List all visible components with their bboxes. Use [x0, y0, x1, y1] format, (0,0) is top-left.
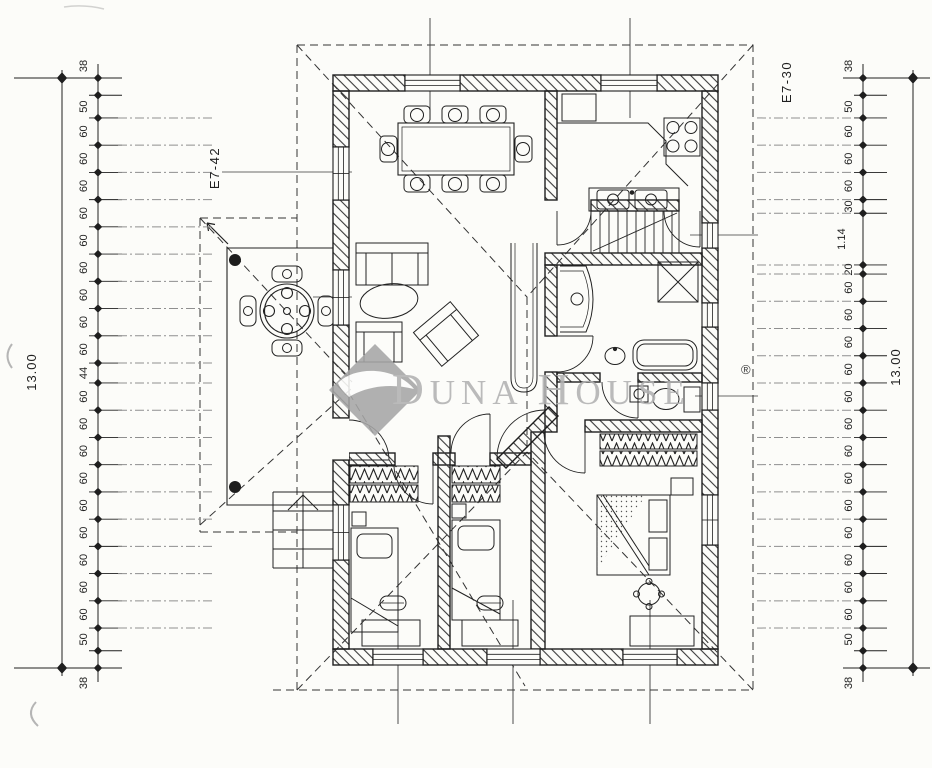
dimension-value: 60 [843, 125, 855, 137]
dimension-value: 60 [78, 343, 90, 355]
dimension-value: 60 [843, 282, 855, 294]
wall-segment [702, 91, 718, 223]
wall-segment [585, 420, 702, 432]
dimension-value: 30 [843, 200, 855, 212]
dimension-value: 60 [78, 125, 90, 137]
window [405, 75, 460, 91]
dimension-value: 60 [78, 207, 90, 219]
watermark-text: DUNAHOUSE [392, 365, 691, 414]
total-dimension-right-label: 13.00 [888, 348, 903, 386]
dimension-value: 50 [843, 633, 855, 645]
dimension-value: 60 [843, 363, 855, 375]
blueprint-canvas: 3850606060606060606060446060606060606060… [0, 0, 932, 768]
wall-segment [540, 649, 623, 665]
window [487, 649, 540, 665]
wall-segment [460, 75, 601, 91]
dimension-value: 60 [843, 581, 855, 593]
dimension-value: 60 [78, 418, 90, 430]
window [333, 147, 349, 200]
dimension-value: 60 [78, 472, 90, 484]
dimension-value: 50 [78, 100, 90, 112]
dimension-value: 60 [843, 336, 855, 348]
wall-segment [333, 200, 349, 270]
axis-code-right: E7-30 [779, 61, 794, 103]
total-dimension-left-label: 13.00 [24, 353, 39, 391]
wall-segment [333, 649, 373, 665]
dimension-value: 38 [843, 677, 855, 689]
dimension-value: 60 [843, 418, 855, 430]
wall-segment [702, 545, 718, 649]
window [702, 223, 718, 248]
wall-segment [545, 265, 557, 336]
dimension-value: 60 [78, 289, 90, 301]
wall-segment [333, 75, 405, 91]
wall-segment [545, 91, 557, 200]
dimension-value: 60 [843, 472, 855, 484]
wall-segment [702, 248, 718, 303]
terrace-post [229, 254, 241, 266]
wall-segment [702, 410, 718, 495]
wardrobe [452, 466, 500, 483]
dimension-value: 60 [78, 262, 90, 274]
window [333, 270, 349, 325]
dimension-value: 60 [78, 527, 90, 539]
dimension-value: 60 [843, 499, 855, 511]
dimension-value: 44 [78, 367, 90, 379]
terrace-post [229, 481, 241, 493]
wall-segment [333, 560, 349, 649]
window [333, 505, 349, 560]
window [702, 303, 718, 327]
dimension-value: 60 [78, 445, 90, 457]
wall-segment [349, 453, 395, 465]
axis-code-left: E7-42 [207, 147, 222, 189]
wall-segment [531, 432, 545, 649]
dimension-value: 60 [78, 316, 90, 328]
wall-segment [677, 649, 718, 665]
dimension-value: 60 [843, 180, 855, 192]
wall-segment [423, 649, 487, 665]
dimension-value: 60 [78, 499, 90, 511]
dimension-value: 1.14 [836, 228, 848, 249]
window [623, 649, 677, 665]
wall-segment [545, 253, 702, 265]
dimension-value: 60 [78, 608, 90, 620]
dimension-value: 60 [843, 309, 855, 321]
dimension-value: 38 [843, 60, 855, 72]
registered-mark: ® [741, 362, 751, 377]
dimension-value: 38 [78, 677, 90, 689]
dimension-value: 60 [78, 581, 90, 593]
window [601, 75, 657, 91]
window [702, 383, 718, 410]
dimension-value: 50 [78, 633, 90, 645]
wardrobe [350, 466, 418, 483]
dimension-value: 60 [78, 554, 90, 566]
dimension-value: 60 [78, 153, 90, 165]
wardrobe [452, 485, 500, 502]
dimension-value: 60 [78, 390, 90, 402]
dimension-value: 38 [78, 60, 90, 72]
dimension-value: 50 [843, 100, 855, 112]
dimension-value: 60 [843, 390, 855, 402]
wardrobe [350, 485, 418, 502]
dimension-value: 60 [78, 180, 90, 192]
dimension-value: 60 [78, 234, 90, 246]
floor-plan-drawing: 3850606060606060606060446060606060606060… [0, 0, 932, 768]
window [373, 649, 423, 665]
dimension-value: 60 [843, 608, 855, 620]
wall-segment [438, 436, 450, 649]
window [702, 495, 718, 545]
wall-segment [333, 91, 349, 147]
wardrobe [600, 434, 697, 449]
wall-segment [657, 75, 718, 91]
dimension-value: 60 [843, 527, 855, 539]
wall-segment [333, 460, 349, 505]
dimension-value: 60 [843, 153, 855, 165]
dimension-value: 60 [843, 445, 855, 457]
wall-segment [702, 327, 718, 383]
dimension-value: 60 [843, 554, 855, 566]
wardrobe [600, 451, 697, 466]
